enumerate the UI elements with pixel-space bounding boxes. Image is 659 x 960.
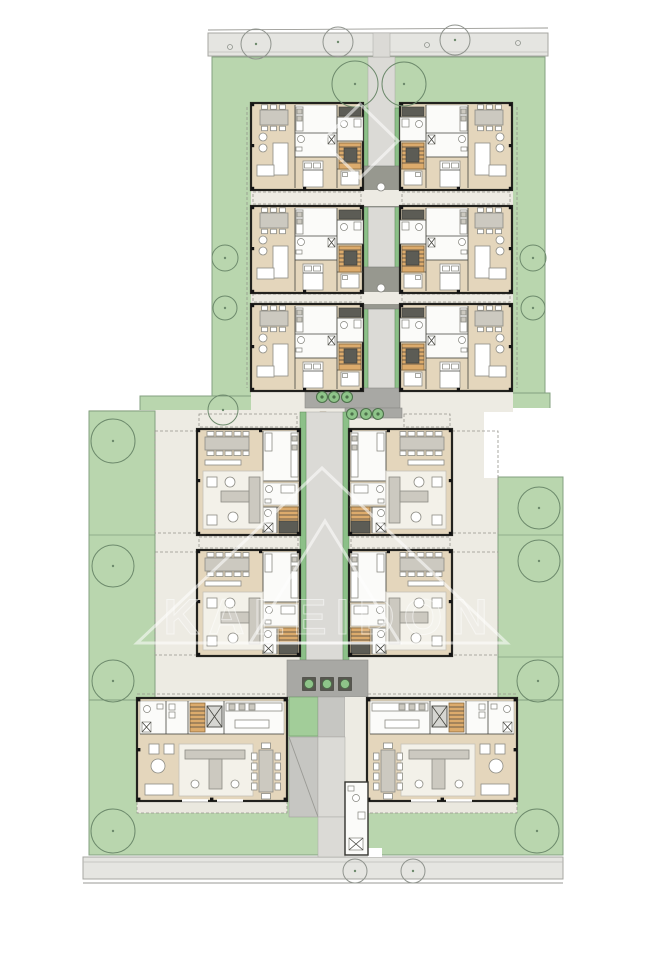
tree-trunk [112,565,114,567]
unit-a2-left [251,206,363,293]
planter-icon [373,409,384,420]
tree-trunk [224,257,226,259]
planter-icon [339,678,352,691]
core-paving [318,697,345,737]
planter-icon [303,678,316,691]
entry-path-top [373,33,390,57]
tree-trunk [112,440,114,442]
planter-plant [332,395,335,398]
planter-plant [320,395,323,398]
tree-trunk [255,43,257,45]
core-niche [368,848,382,857]
planter-plant [341,680,350,689]
unit-a1-left [251,103,363,190]
tree-trunk [403,83,405,85]
unit-b1-left [197,429,300,535]
planter-plant [376,412,379,415]
planter-icon [317,392,328,403]
skylight [377,284,385,292]
corridor-middle-walk [306,412,343,660]
tree-trunk [538,560,540,562]
terrace-outline [137,801,287,813]
unit-a1-right [400,103,512,190]
tree-trunk [537,680,539,682]
tree-trunk [337,41,339,43]
tree-trunk [222,409,224,411]
unit-a3-left [251,304,363,391]
tree-trunk [538,507,540,509]
tree-trunk [224,307,226,309]
planter-icon [361,409,372,420]
site-plan-svg: KALEIDON [0,0,659,960]
lawn-square [289,697,318,736]
site-notch-right [484,408,564,478]
core-paving [345,697,368,782]
planter-plant [345,395,348,398]
unit-c-left [137,698,287,802]
sidewalk-bottom [83,857,563,879]
planter-icon [347,409,358,420]
tree-trunk [112,680,114,682]
tech-room [345,782,368,855]
unit-b1-right [349,429,452,535]
terrace-outline [368,801,517,813]
unit-b2-right [349,550,452,656]
tree-trunk [112,830,114,832]
tree-trunk [412,870,414,872]
planter-icon [342,392,353,403]
corridor-top-walk [368,57,395,396]
tree-trunk [354,870,356,872]
tree-trunk [454,39,456,41]
planter-plant [364,412,367,415]
skylight [377,183,385,191]
unit-c-right [367,698,517,802]
tree-trunk [536,830,538,832]
site-plan-page: KALEIDON [0,0,659,960]
planter-plant [350,412,353,415]
planter-icon [329,392,340,403]
tree-trunk [532,307,534,309]
planter-plant [305,680,314,689]
entry-path-bottom [318,817,345,857]
unit-a3-right [400,304,512,391]
unit-b2-left [197,550,300,656]
planter-plant [323,680,332,689]
planter-icon [321,678,334,691]
tree-trunk [532,257,534,259]
corridor-bottom-walk [318,737,345,817]
tree-trunk [354,83,356,85]
unit-a2-right [400,206,512,293]
